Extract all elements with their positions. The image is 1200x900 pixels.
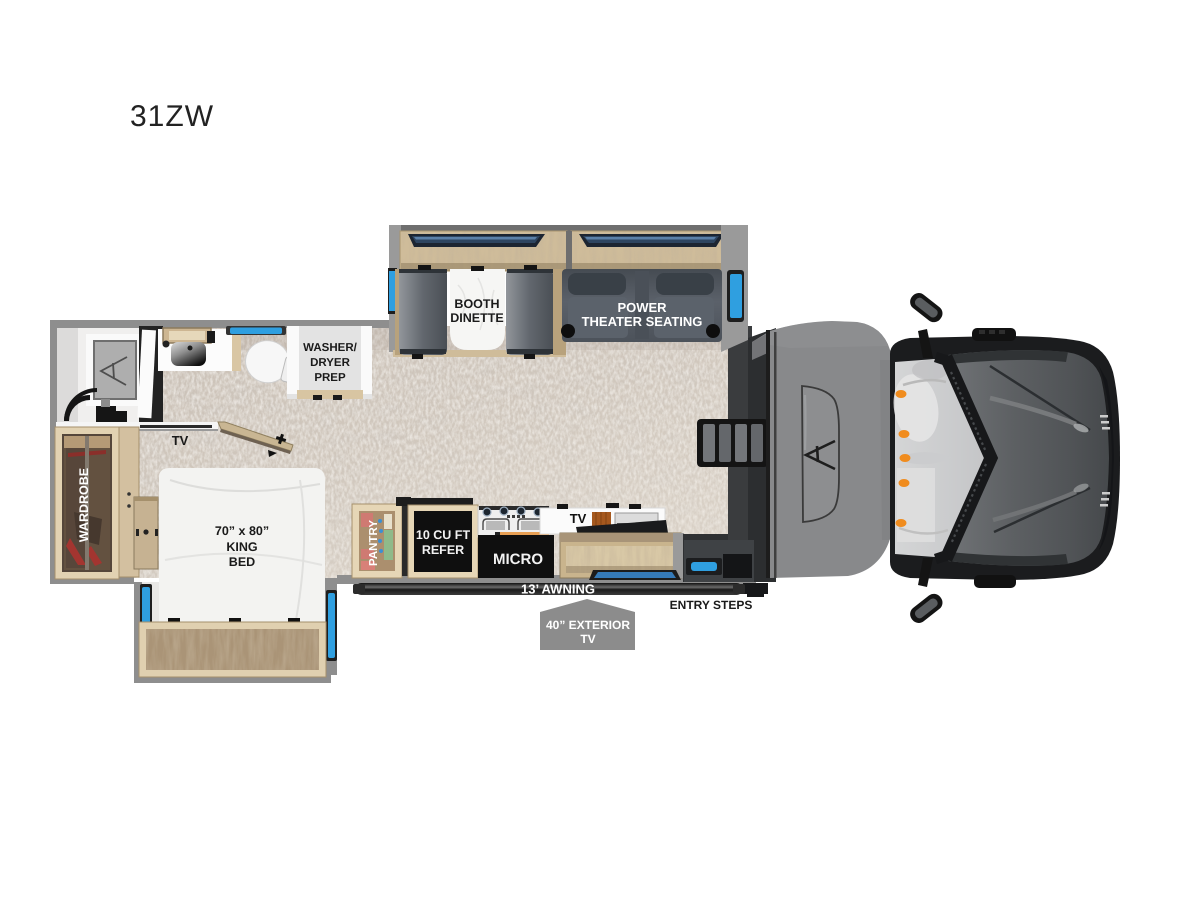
svg-text:TV: TV [570,511,587,526]
svg-text:31ZW: 31ZW [130,100,214,133]
svg-text:ENTRY STEPS: ENTRY STEPS [670,598,753,612]
svg-text:PREP: PREP [314,372,346,384]
svg-text:WASHER/: WASHER/ [303,342,357,354]
svg-text:TV: TV [172,433,189,448]
svg-text:BOOTH: BOOTH [454,297,499,311]
svg-text:70” x 80”: 70” x 80” [215,524,269,538]
svg-text:POWER: POWER [617,300,667,315]
svg-text:BED: BED [229,555,255,569]
svg-text:WARDROBE: WARDROBE [77,468,91,542]
svg-text:MICRO: MICRO [493,551,543,568]
svg-text:40” EXTERIOR: 40” EXTERIOR [546,618,630,632]
svg-text:10 CU FT: 10 CU FT [416,528,471,542]
svg-text:THEATER SEATING: THEATER SEATING [582,314,703,329]
svg-text:13’ AWNING: 13’ AWNING [521,582,595,597]
svg-text:DINETTE: DINETTE [450,311,503,325]
svg-text:DRYER: DRYER [310,357,351,369]
svg-text:REFER: REFER [422,543,464,557]
svg-text:TV: TV [580,632,595,646]
svg-text:PANTRY: PANTRY [368,520,380,566]
svg-text:KING: KING [226,540,257,554]
